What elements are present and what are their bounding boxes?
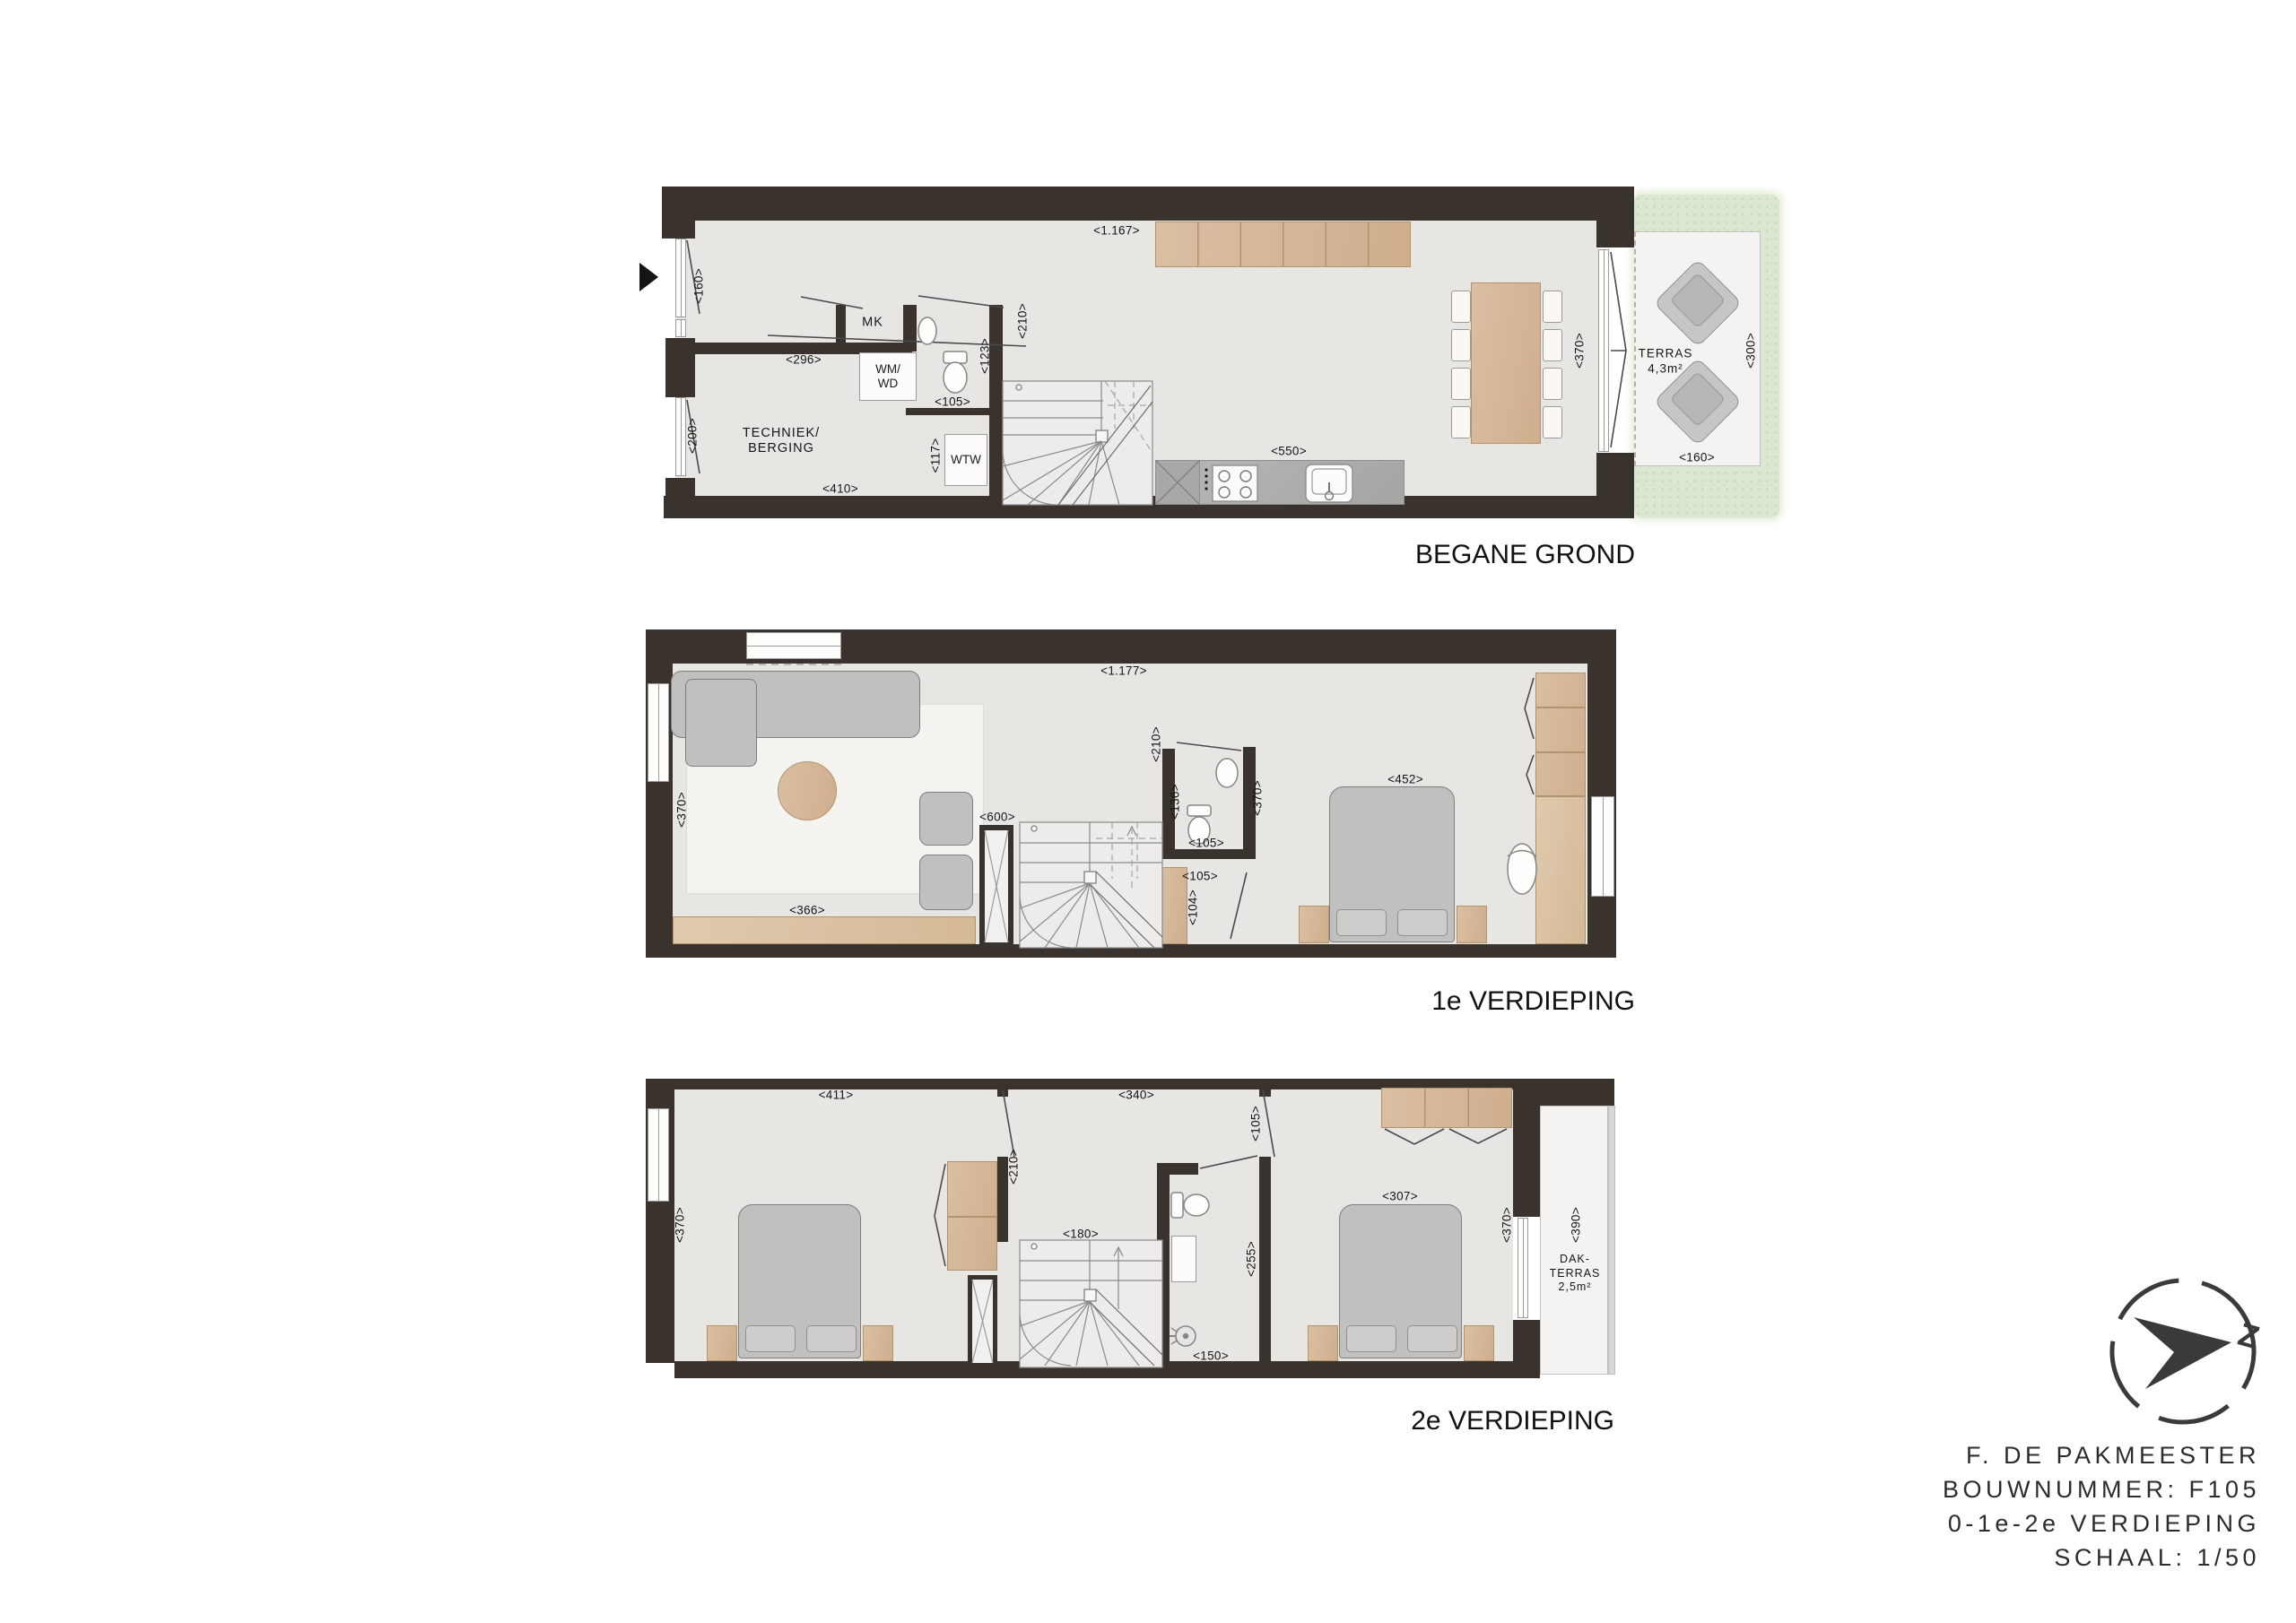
build-number: BOUWNUMMER: F105 (1704, 1472, 2260, 1506)
wall-segment (665, 478, 695, 518)
pillow (806, 1325, 857, 1352)
title-block: F. DE PAKMEESTER BOUWNUMMER: F105 0-1e-2… (1704, 1438, 2260, 1575)
scale-note: SCHAAL: 1/50 (1704, 1541, 2260, 1575)
wall-segment (989, 305, 1003, 518)
dining-chair (1451, 368, 1471, 400)
desk (1535, 796, 1586, 944)
roof-terrace-floor (1540, 1106, 1608, 1375)
wall-segment (997, 1088, 1008, 1097)
wall-segment (665, 338, 695, 397)
nightstand (1457, 906, 1487, 943)
dining-chair (1543, 368, 1562, 400)
wall-segment (1175, 849, 1243, 859)
counter-end-unit (1155, 460, 1200, 505)
compass-icon: Z (2087, 1255, 2279, 1447)
wall-segment (1513, 1106, 1540, 1217)
pillow (1346, 1325, 1396, 1352)
svg-text:Z: Z (2234, 1315, 2263, 1356)
wall-segment (997, 1157, 1008, 1242)
wall-segment (906, 408, 989, 415)
wall-segment (674, 1361, 1516, 1378)
wall-segment (1596, 453, 1634, 518)
wall-segment (1243, 747, 1256, 859)
nightstand (707, 1325, 737, 1361)
wall-segment (1259, 1157, 1271, 1363)
wall-segment (695, 343, 912, 354)
front-door-window (675, 239, 686, 317)
dining-chair (1543, 291, 1562, 323)
nightstand (1464, 1325, 1494, 1361)
wall-segment (1513, 1079, 1614, 1106)
wardrobe-divider (1535, 751, 1586, 753)
window (675, 319, 686, 337)
wall-segment (646, 944, 1616, 958)
wardrobe (1535, 673, 1586, 796)
pillow (1336, 909, 1387, 936)
wall-segment (903, 305, 917, 352)
kitchen-wall-cabinets (1155, 221, 1411, 267)
floor-title-first: 1e VERDIEPING (1300, 986, 1635, 1017)
wardrobe-divider (1535, 707, 1586, 708)
armchair (919, 792, 973, 846)
window (675, 397, 686, 476)
shaft (968, 1275, 997, 1367)
terrace-door-window (1518, 1218, 1528, 1318)
wall-segment (1157, 1163, 1198, 1175)
wall-segment (836, 305, 846, 354)
window (648, 1108, 669, 1202)
pillow (1407, 1325, 1457, 1352)
wardrobe (1381, 1088, 1512, 1128)
floorplan-sheet: Z <1.167><160><296><200><410><123><105><… (0, 0, 2296, 1623)
shaft (979, 825, 1013, 948)
nightstand (1299, 906, 1329, 943)
pillow (1397, 909, 1448, 936)
wall-segment (1259, 1088, 1271, 1097)
dining-chair (1451, 406, 1471, 438)
floors-listed: 0-1e-2e VERDIEPING (1704, 1506, 2260, 1541)
window (746, 632, 841, 659)
terrace-door-window (1598, 249, 1609, 452)
dining-table (1471, 282, 1541, 444)
wall-segment (1596, 221, 1634, 247)
wall-segment (1162, 749, 1175, 859)
pillow (745, 1325, 796, 1352)
coffee-table (778, 761, 837, 820)
sofa-chaise (685, 679, 757, 767)
dining-chair (1543, 329, 1562, 361)
project-name: F. DE PAKMEESTER (1704, 1438, 2260, 1472)
wall-segment (664, 187, 1634, 221)
nightstand (863, 1325, 893, 1361)
wall-segment (662, 187, 695, 239)
wall-segment (1513, 1320, 1540, 1378)
dining-chair (1451, 291, 1471, 323)
entrance-arrow-icon (639, 263, 658, 291)
wall-segment (1587, 629, 1616, 958)
wall-segment (1157, 1163, 1170, 1363)
dining-chair (1543, 406, 1562, 438)
lounge-chair-cushion (1670, 273, 1726, 328)
armchair (919, 855, 973, 910)
window (648, 683, 669, 782)
cabinet (1159, 867, 1187, 944)
lounge-chair-cushion (1670, 371, 1726, 427)
terrace-parapet (1608, 1106, 1615, 1375)
floor-edge-cabinet (673, 916, 976, 944)
dining-chair (1451, 329, 1471, 361)
wall-segment (646, 1079, 674, 1103)
floor-title-second: 2e VERDIEPING (1280, 1406, 1614, 1436)
wall-segment (664, 496, 1634, 518)
nightstand (1308, 1325, 1338, 1361)
floor-title-ground: BEGANE GROND (1300, 540, 1635, 570)
window (1591, 796, 1614, 897)
bath-vanity (1171, 1236, 1196, 1282)
wardrobe-divider (947, 1216, 997, 1218)
